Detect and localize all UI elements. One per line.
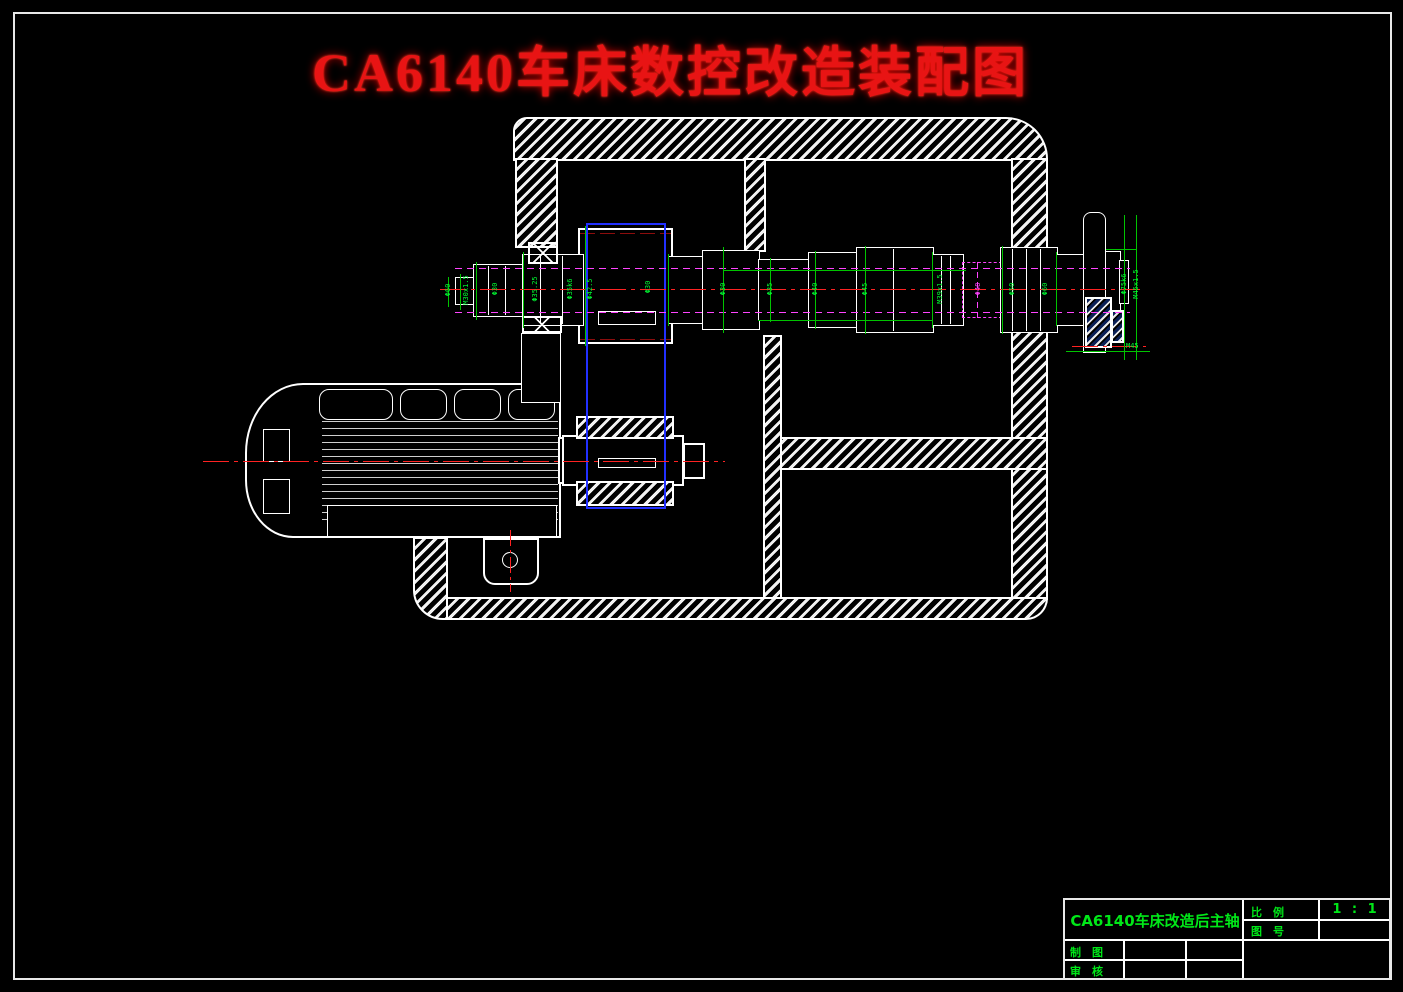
dim-label: Φ60 bbox=[1041, 267, 1049, 311]
dim-chain-line bbox=[758, 320, 932, 321]
motor-terminal-lower bbox=[263, 479, 290, 514]
shaft-step bbox=[668, 256, 704, 324]
motor-terminal-upper bbox=[263, 429, 290, 462]
title-block-scale-value: 1 : 1 bbox=[1324, 902, 1388, 917]
shaft-step-line bbox=[562, 256, 563, 324]
dim-label: Φ75k6 bbox=[1120, 262, 1128, 306]
motor-vent-slot bbox=[319, 389, 393, 420]
locknut-step bbox=[1111, 310, 1124, 343]
dim-label: M39x1.5 bbox=[936, 267, 944, 311]
shaft-step-line bbox=[893, 249, 894, 331]
housing-right-wall bbox=[1011, 158, 1048, 600]
housing-left-wall bbox=[515, 158, 558, 248]
cad-drawing-canvas: CA6140车床数控改造装配图 bbox=[0, 0, 1403, 992]
dim-line bbox=[476, 262, 477, 320]
motor-base-frame bbox=[327, 505, 557, 537]
hidden-line-lower bbox=[455, 312, 1130, 313]
dim-label: Φ35.25 bbox=[531, 267, 539, 311]
dim-label: M45 bbox=[1126, 342, 1139, 350]
shaft-step-line bbox=[488, 266, 489, 315]
dim-line bbox=[932, 252, 933, 328]
title-block-drawn-label: 制 图 bbox=[1070, 944, 1103, 960]
dim-label-hidden: Φ48 bbox=[974, 267, 982, 311]
shaft-step-line bbox=[505, 266, 506, 315]
gear-train-envelope bbox=[586, 223, 666, 509]
title-block-drawing-no-label: 图 号 bbox=[1251, 923, 1284, 939]
dim-line bbox=[668, 254, 669, 326]
bearing-support-bracket bbox=[521, 333, 561, 403]
dim-label: Φ60 bbox=[444, 268, 452, 312]
motor-foot-centerline bbox=[510, 530, 511, 592]
hidden-section bbox=[962, 262, 1002, 318]
housing-bottom-left-lip bbox=[413, 537, 448, 620]
housing-mid-shelf bbox=[763, 437, 1048, 470]
dim-label: Φ40 bbox=[811, 267, 819, 311]
dim-label: Φ30 bbox=[644, 265, 652, 309]
dim-label: Φ42.5 bbox=[586, 267, 594, 311]
housing-top-wall bbox=[513, 117, 1048, 161]
dim-label: Φ30 bbox=[491, 267, 499, 311]
dim-line bbox=[1056, 252, 1057, 326]
shaft-step-line bbox=[1026, 249, 1027, 331]
shaft-step-line bbox=[540, 256, 541, 324]
locknut-section bbox=[1085, 297, 1112, 348]
bearing-symbol-upper bbox=[528, 242, 558, 264]
dim-label: Φ35k6 bbox=[566, 267, 574, 311]
title-block-hline bbox=[1065, 939, 1389, 941]
dim-chain-line bbox=[723, 270, 966, 271]
dim-arrow-line bbox=[1066, 351, 1150, 352]
dim-label: Φ30 bbox=[719, 267, 727, 311]
dim-label: Φ35 bbox=[766, 267, 774, 311]
dim-label: M30x1.5 bbox=[462, 268, 470, 312]
drawing-title: CA6140车床数控改造装配图 bbox=[312, 28, 1029, 107]
spindle-centerline bbox=[440, 289, 1140, 290]
title-block: CA6140车床改造后主轴 比 例 1 : 1 图 号 制 图 审 核 bbox=[1063, 898, 1391, 980]
motor-centerline bbox=[203, 461, 725, 462]
motor-vent-slot bbox=[454, 389, 501, 420]
title-block-scale-label: 比 例 bbox=[1251, 904, 1284, 920]
shaft-step bbox=[1056, 254, 1084, 326]
dim-label: M45x1.5 bbox=[1132, 262, 1140, 306]
title-block-vline bbox=[1185, 941, 1187, 978]
shaft-step-line bbox=[950, 256, 951, 324]
dim-chain-line bbox=[1106, 249, 1136, 250]
dim-label: Φ45 bbox=[861, 267, 869, 311]
housing-mid-rib-upper bbox=[744, 158, 766, 252]
dim-line bbox=[1002, 246, 1003, 334]
dim-line bbox=[523, 252, 524, 328]
title-block-part-name: CA6140车床改造后主轴 bbox=[1069, 910, 1241, 931]
dim-label: Φ50 bbox=[1008, 267, 1016, 311]
motor-vent-slot bbox=[400, 389, 447, 420]
title-block-checked-label: 审 核 bbox=[1070, 963, 1103, 979]
shaft-step bbox=[702, 250, 760, 330]
bearing-symbol-lower bbox=[522, 316, 562, 333]
title-block-vline bbox=[1123, 941, 1125, 978]
dim-line bbox=[460, 274, 461, 310]
housing-bottom-wall bbox=[446, 597, 1048, 620]
housing-mid-rib-lower bbox=[763, 335, 782, 600]
hidden-line-upper bbox=[455, 268, 1130, 269]
